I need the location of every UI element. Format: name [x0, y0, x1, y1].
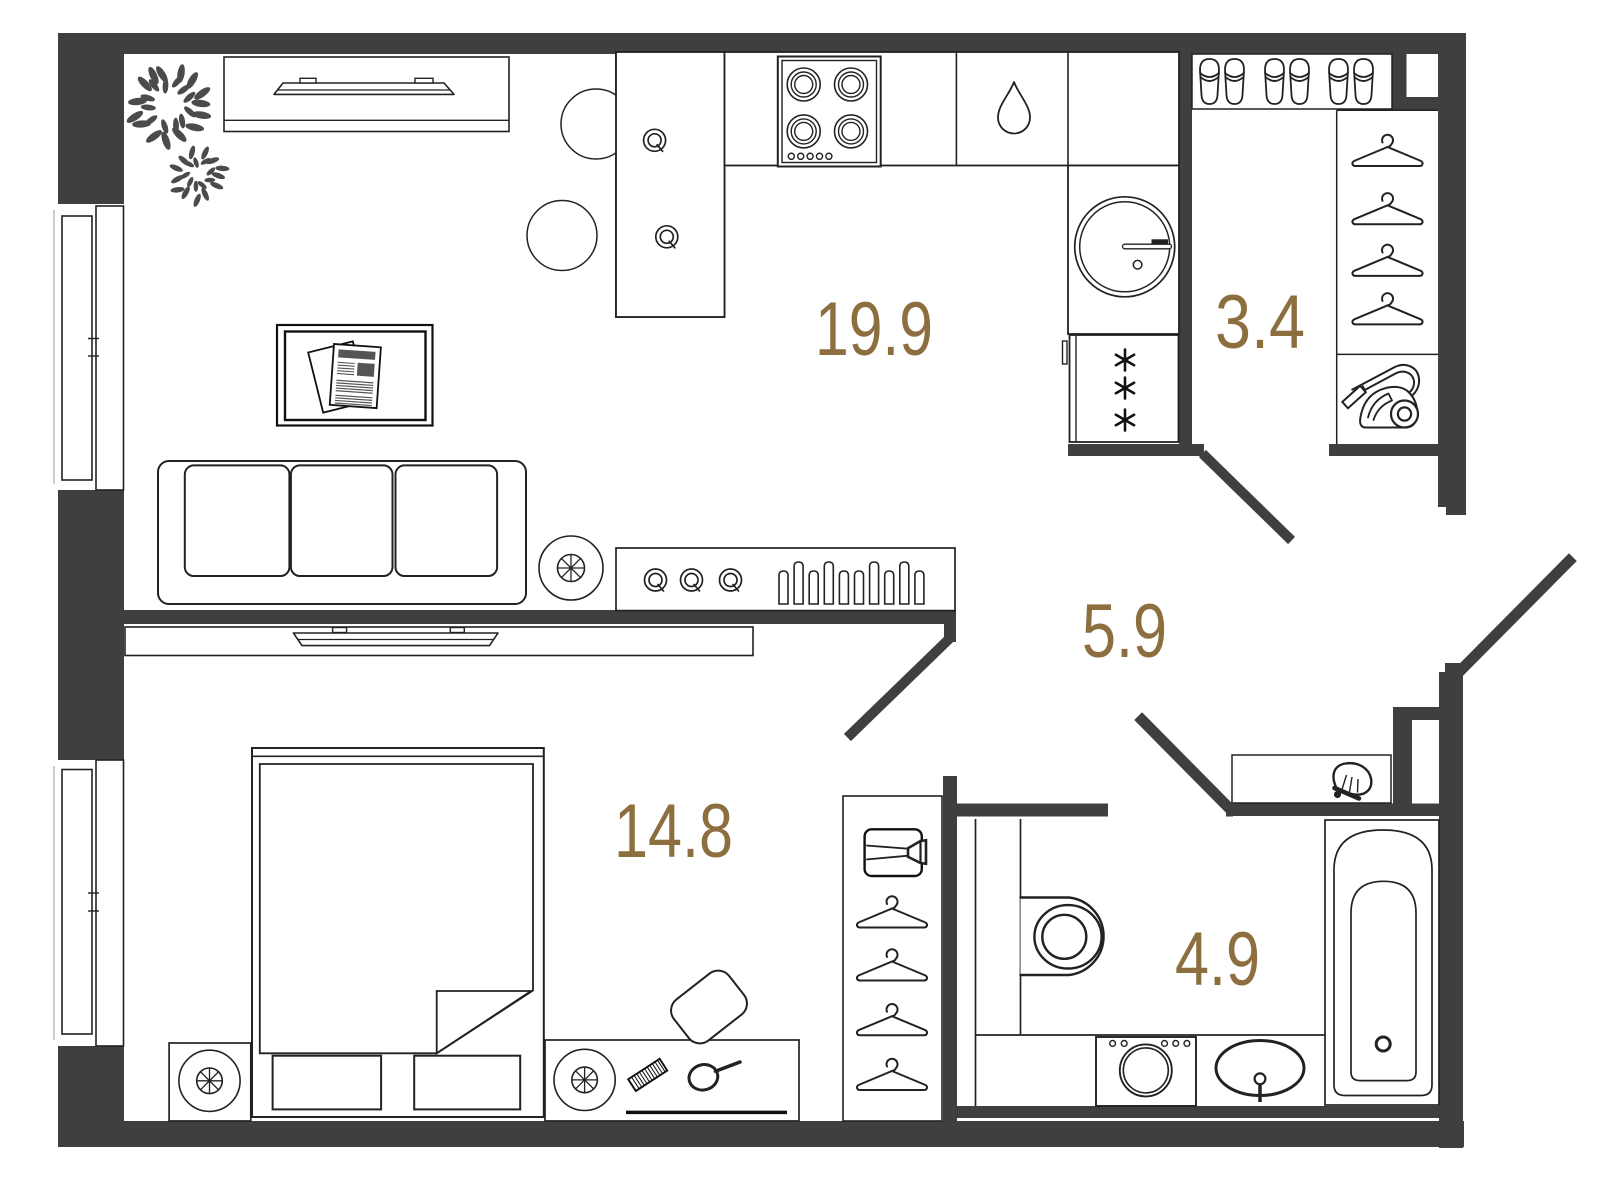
svg-text:14.8: 14.8 [614, 789, 733, 874]
svg-text:5.9: 5.9 [1082, 589, 1167, 674]
svg-text:19.9: 19.9 [815, 287, 933, 372]
svg-text:4.9: 4.9 [1175, 917, 1260, 1002]
svg-text:3.4: 3.4 [1215, 280, 1305, 365]
